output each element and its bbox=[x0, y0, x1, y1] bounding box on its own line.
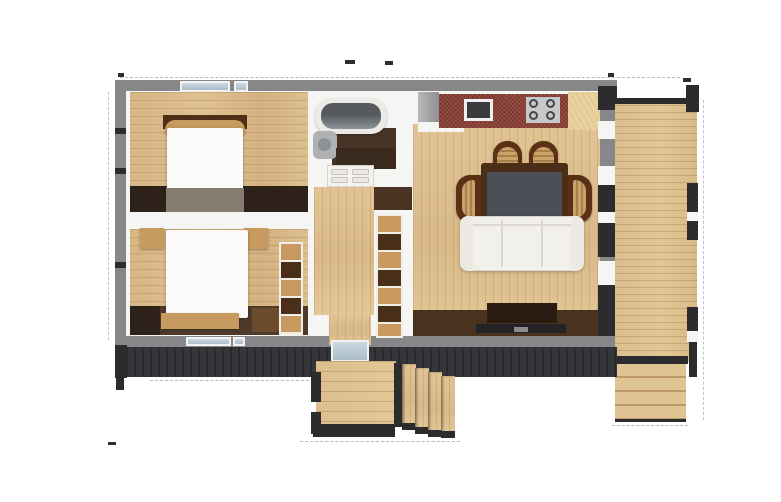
deck-post bbox=[687, 183, 698, 212]
cabinet-drawer bbox=[331, 169, 348, 175]
tv-console bbox=[487, 303, 557, 323]
washbasin-bowl bbox=[318, 138, 331, 151]
deck-edge-top bbox=[615, 98, 689, 104]
floor-plan-canvas bbox=[0, 0, 781, 502]
bedroom2-dark-floor-corner-left bbox=[130, 306, 160, 335]
dimension-annotation-mark bbox=[608, 73, 614, 77]
kitchen-counter-wood-end bbox=[568, 92, 600, 130]
deck-post bbox=[689, 342, 697, 377]
cabinet-drawer bbox=[352, 177, 369, 183]
porch-divider bbox=[394, 363, 402, 427]
bedroom2-window bbox=[186, 337, 231, 346]
sofa-seam bbox=[541, 220, 543, 267]
side-deck bbox=[615, 98, 697, 362]
porch-post bbox=[311, 372, 321, 402]
porch-step-1 bbox=[402, 364, 416, 430]
bedroom1-dark-floor-corner-left bbox=[130, 186, 166, 212]
hallway-closet-top bbox=[374, 187, 412, 210]
kitchen-sink bbox=[464, 99, 493, 121]
porch-edge-bottom bbox=[313, 424, 395, 437]
cabinet-drawer bbox=[352, 169, 369, 175]
bedroom1-bed bbox=[167, 128, 243, 190]
cooktop-burner bbox=[546, 99, 555, 108]
deck-rail-gap bbox=[687, 212, 698, 221]
cooktop-burner bbox=[529, 99, 538, 108]
dimension-line-right bbox=[703, 100, 704, 420]
porch-post bbox=[311, 412, 321, 434]
bathroom-window bbox=[234, 81, 248, 92]
dimension-annotation-mark bbox=[385, 61, 393, 65]
deck-rail-gap bbox=[687, 331, 698, 342]
bedroom2-nightstand-left bbox=[140, 228, 164, 249]
bedroom2-floor-accent bbox=[252, 308, 280, 332]
dimension-annotation-mark bbox=[118, 73, 124, 77]
dimension-annotation-mark bbox=[683, 78, 691, 82]
dimension-line-deck bbox=[612, 425, 688, 426]
porch-step-3 bbox=[428, 372, 442, 437]
bedroom2-shelf-unit bbox=[279, 242, 303, 335]
dimension-line-top bbox=[120, 77, 680, 78]
chair-seat bbox=[462, 180, 475, 218]
deck-post bbox=[687, 307, 698, 331]
bedroom1-under-bed-runner bbox=[166, 188, 244, 212]
entry-door bbox=[331, 340, 369, 362]
wall-post bbox=[115, 128, 126, 134]
porch-step-4 bbox=[441, 376, 455, 438]
wall-post bbox=[115, 168, 126, 174]
bedroom2-small-window bbox=[233, 337, 245, 346]
sofa-armrest-left bbox=[460, 216, 473, 271]
bathtub-basin bbox=[321, 103, 381, 129]
dimension-line-porch bbox=[300, 441, 460, 442]
entry-porch bbox=[316, 361, 396, 425]
porch-step-2 bbox=[415, 368, 429, 434]
bedroom2-foot-bench bbox=[161, 313, 239, 329]
hallway-shelf-unit bbox=[376, 214, 403, 338]
sofa-seam bbox=[501, 220, 503, 267]
cooktop-burner bbox=[529, 111, 538, 120]
deck-corner-post bbox=[686, 85, 699, 112]
cabinet-drawer bbox=[331, 177, 348, 183]
cooktop-burner bbox=[546, 111, 555, 120]
bedroom1-window bbox=[180, 81, 230, 92]
deck-post bbox=[687, 221, 698, 240]
dimension-annotation-mark bbox=[345, 60, 355, 64]
wall-post bbox=[115, 262, 126, 268]
deck-steps bbox=[615, 364, 686, 421]
chair-seat bbox=[573, 180, 586, 218]
deck-steps-edge bbox=[615, 419, 686, 422]
sofa-armrest-right bbox=[571, 216, 584, 271]
dimension-line-left bbox=[108, 92, 109, 340]
hallway-floor bbox=[314, 187, 374, 315]
sofa-back-seam bbox=[472, 224, 572, 226]
bedroom1-dark-floor-corner-right bbox=[243, 186, 308, 212]
dimension-annotation-mark bbox=[108, 442, 116, 445]
tv-stand bbox=[514, 327, 528, 332]
bedroom2-bed bbox=[166, 230, 248, 318]
facade-post-stub bbox=[116, 374, 124, 390]
deck-edge-bottom bbox=[615, 356, 688, 364]
